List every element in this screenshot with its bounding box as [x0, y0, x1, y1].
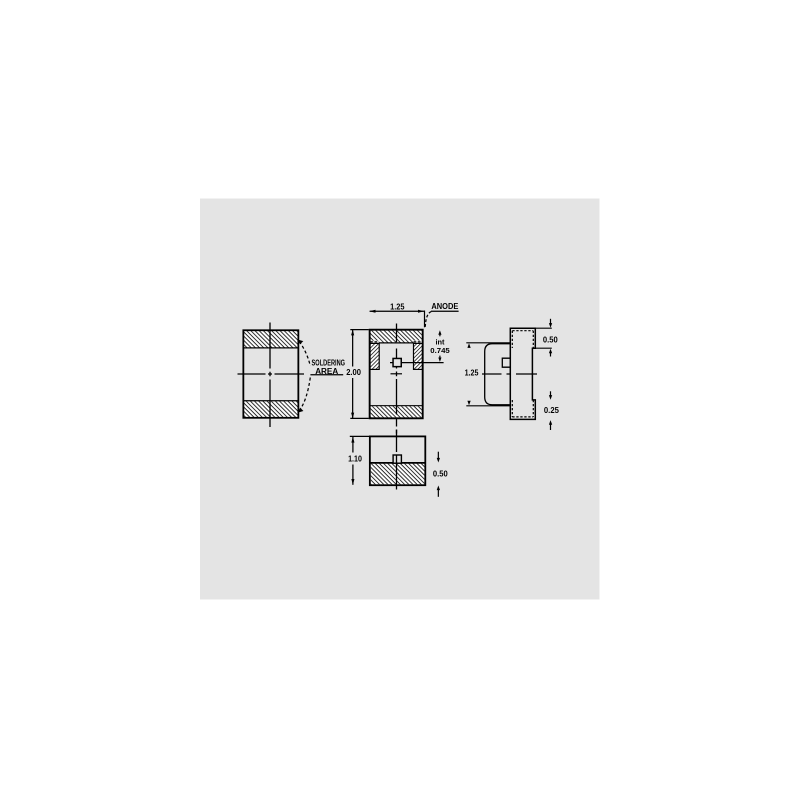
svg-text:2.00: 2.00: [346, 367, 361, 377]
svg-text:1.25: 1.25: [390, 301, 405, 311]
svg-text:0.25: 0.25: [544, 405, 559, 415]
svg-text:0.745: 0.745: [430, 346, 449, 355]
svg-text:ANODE: ANODE: [431, 301, 458, 311]
svg-text:1.25: 1.25: [465, 367, 479, 377]
svg-text:0.50: 0.50: [543, 334, 558, 344]
svg-text:1.10: 1.10: [348, 453, 362, 463]
svg-text:0.50: 0.50: [433, 468, 448, 478]
